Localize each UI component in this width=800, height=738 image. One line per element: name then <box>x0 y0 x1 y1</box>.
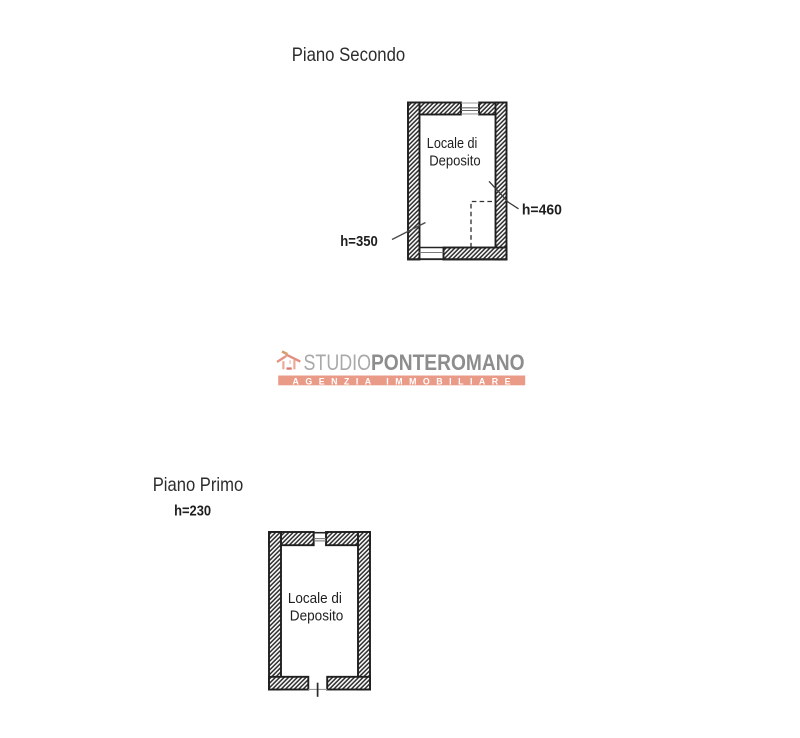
svg-text:Piano Primo: Piano Primo <box>153 474 244 496</box>
svg-text:Piano Secondo: Piano Secondo <box>292 44 406 66</box>
svg-text:Locale di: Locale di <box>288 591 342 607</box>
svg-text:PONTEROMANO: PONTEROMANO <box>371 350 525 375</box>
svg-text:h=460: h=460 <box>522 203 562 219</box>
svg-text:Deposito: Deposito <box>290 608 344 624</box>
svg-text:Locale di: Locale di <box>427 136 478 152</box>
svg-text:STUDIO: STUDIO <box>304 350 372 375</box>
svg-text:h=350: h=350 <box>340 234 378 250</box>
svg-text:Deposito: Deposito <box>429 154 481 170</box>
svg-text:h=230: h=230 <box>174 503 211 519</box>
